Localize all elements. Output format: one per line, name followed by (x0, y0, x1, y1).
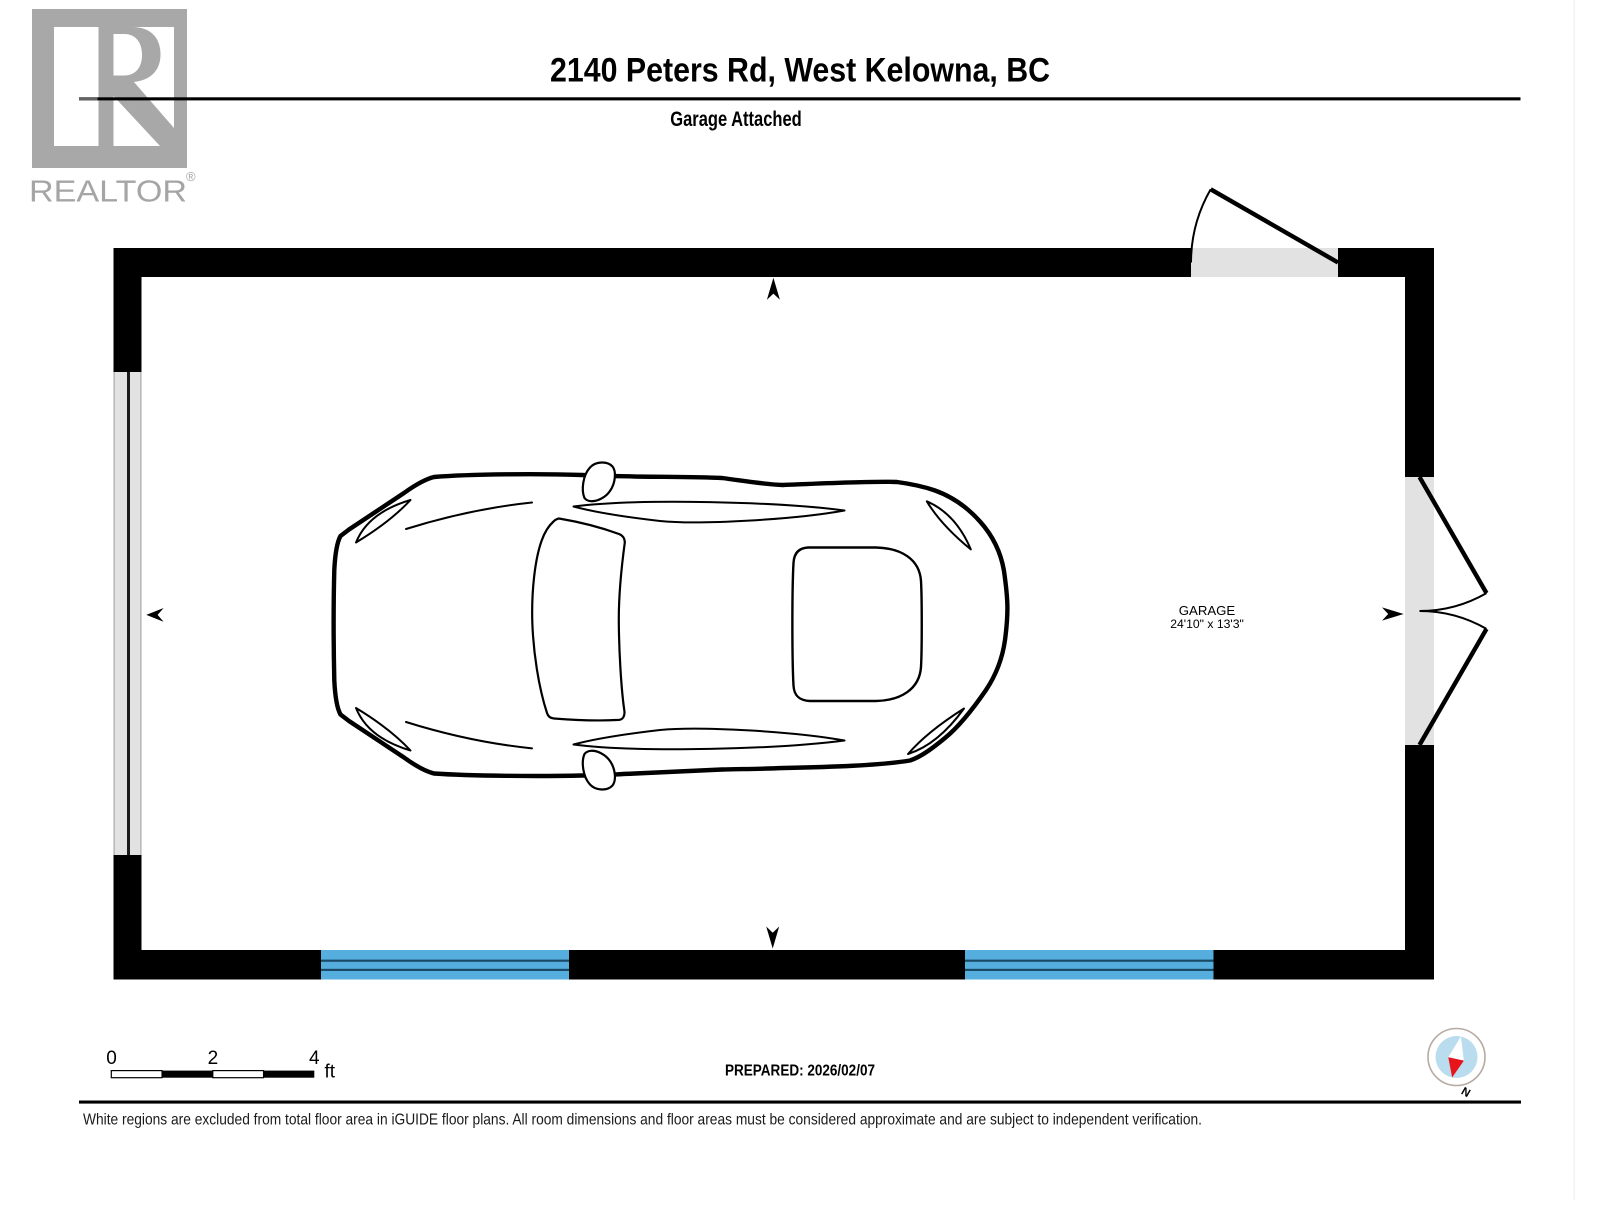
svg-text:REALTOR: REALTOR (29, 174, 187, 209)
svg-text:White regions are excluded fro: White regions are excluded from total fl… (83, 1112, 1202, 1129)
svg-text:GARAGE: GARAGE (1179, 603, 1236, 618)
svg-text:ft: ft (325, 1062, 336, 1083)
svg-text:0: 0 (106, 1048, 117, 1069)
svg-text:2: 2 (208, 1048, 219, 1069)
svg-text:24'10" x 13'3": 24'10" x 13'3" (1170, 617, 1244, 631)
svg-text:®: ® (186, 169, 196, 184)
svg-text:PREPARED: 2026/02/07: PREPARED: 2026/02/07 (725, 1063, 875, 1080)
svg-text:2140 Peters Rd, West Kelowna,: 2140 Peters Rd, West Kelowna, BC (550, 52, 1050, 90)
svg-text:Garage Attached: Garage Attached (670, 108, 802, 131)
svg-text:4: 4 (309, 1048, 320, 1069)
